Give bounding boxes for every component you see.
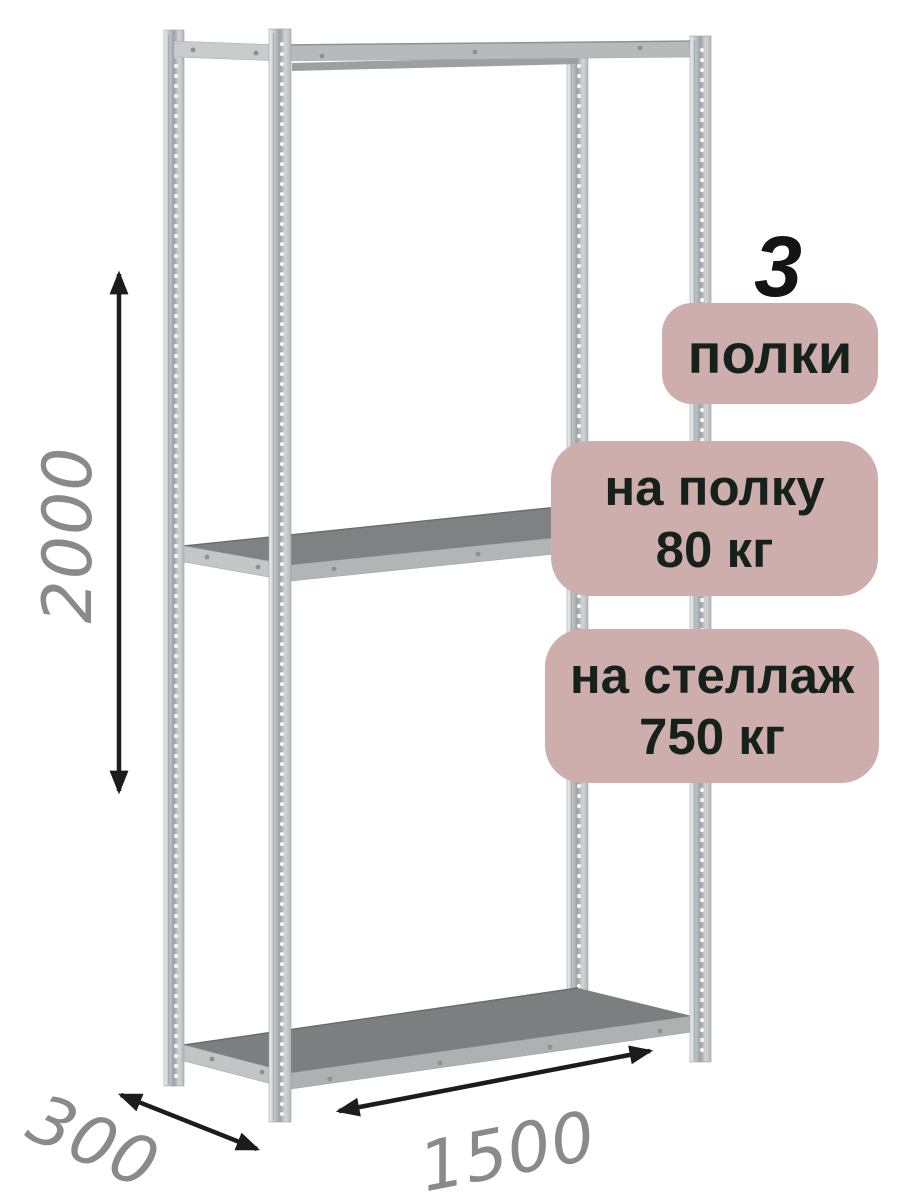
top-side-beam xyxy=(174,41,281,61)
badge-load-per-rack-line1: на стеллаж xyxy=(570,645,854,706)
dimension-height-label: 2000 xyxy=(35,435,103,635)
rack-bottom-shelf xyxy=(184,988,692,1089)
badge-load-per-rack: на стеллаж 750 кг xyxy=(545,629,879,783)
badge-shelf-count-label: полки xyxy=(688,320,853,387)
rack-post-front-left xyxy=(269,29,291,1122)
badge-load-per-shelf-line2: 80 кг xyxy=(656,519,774,580)
badge-load-per-shelf: на полку 80 кг xyxy=(551,441,878,596)
badge-load-per-rack-line2: 750 кг xyxy=(639,706,785,767)
shelf-count-number: 3 xyxy=(718,222,838,312)
badge-shelf-count: полки xyxy=(662,303,878,404)
badge-load-per-shelf-line1: на полку xyxy=(604,457,824,518)
shelving-rack-illustration xyxy=(0,0,900,1200)
rack-post-back-left xyxy=(164,30,184,1086)
rack-top-frame xyxy=(174,41,702,71)
product-image: 3 полки на полку 80 кг на стеллаж 750 кг… xyxy=(0,0,900,1200)
